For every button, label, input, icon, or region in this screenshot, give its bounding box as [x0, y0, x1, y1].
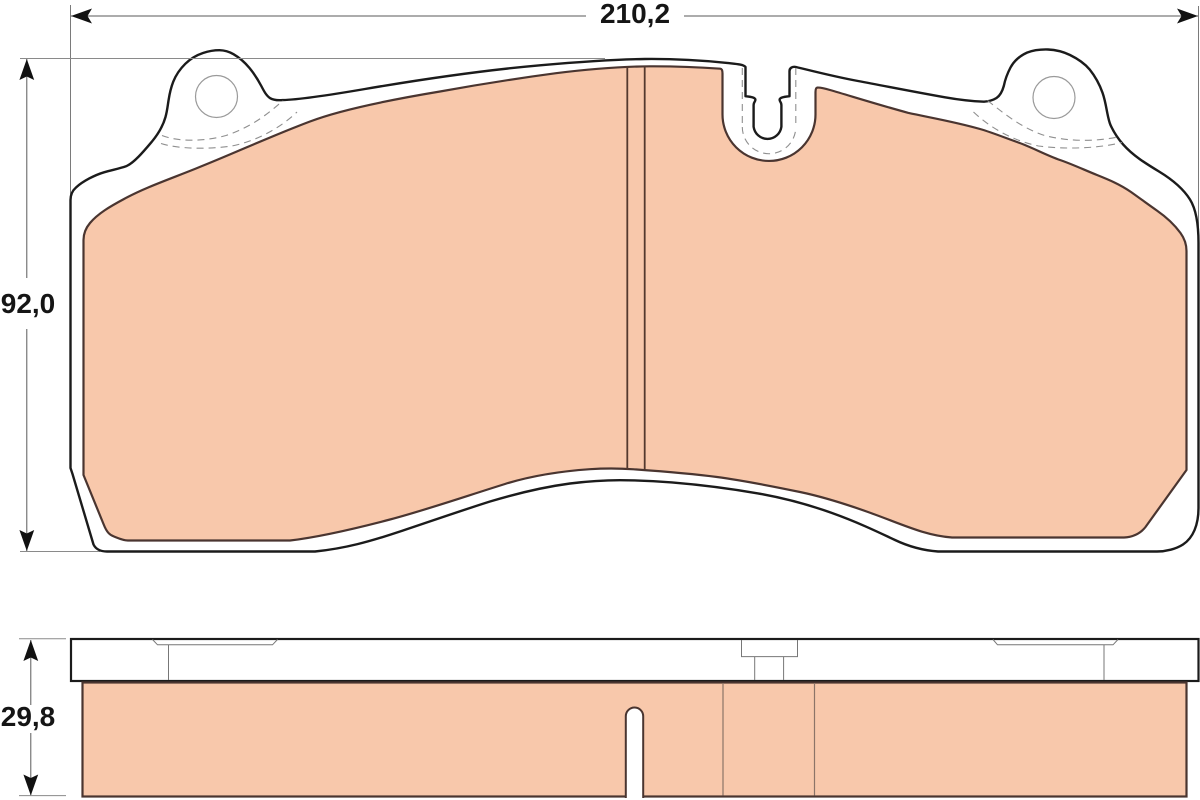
- svg-text:92,0: 92,0: [1, 288, 56, 319]
- svg-text:29,8: 29,8: [1, 701, 56, 732]
- svg-text:210,2: 210,2: [600, 0, 670, 29]
